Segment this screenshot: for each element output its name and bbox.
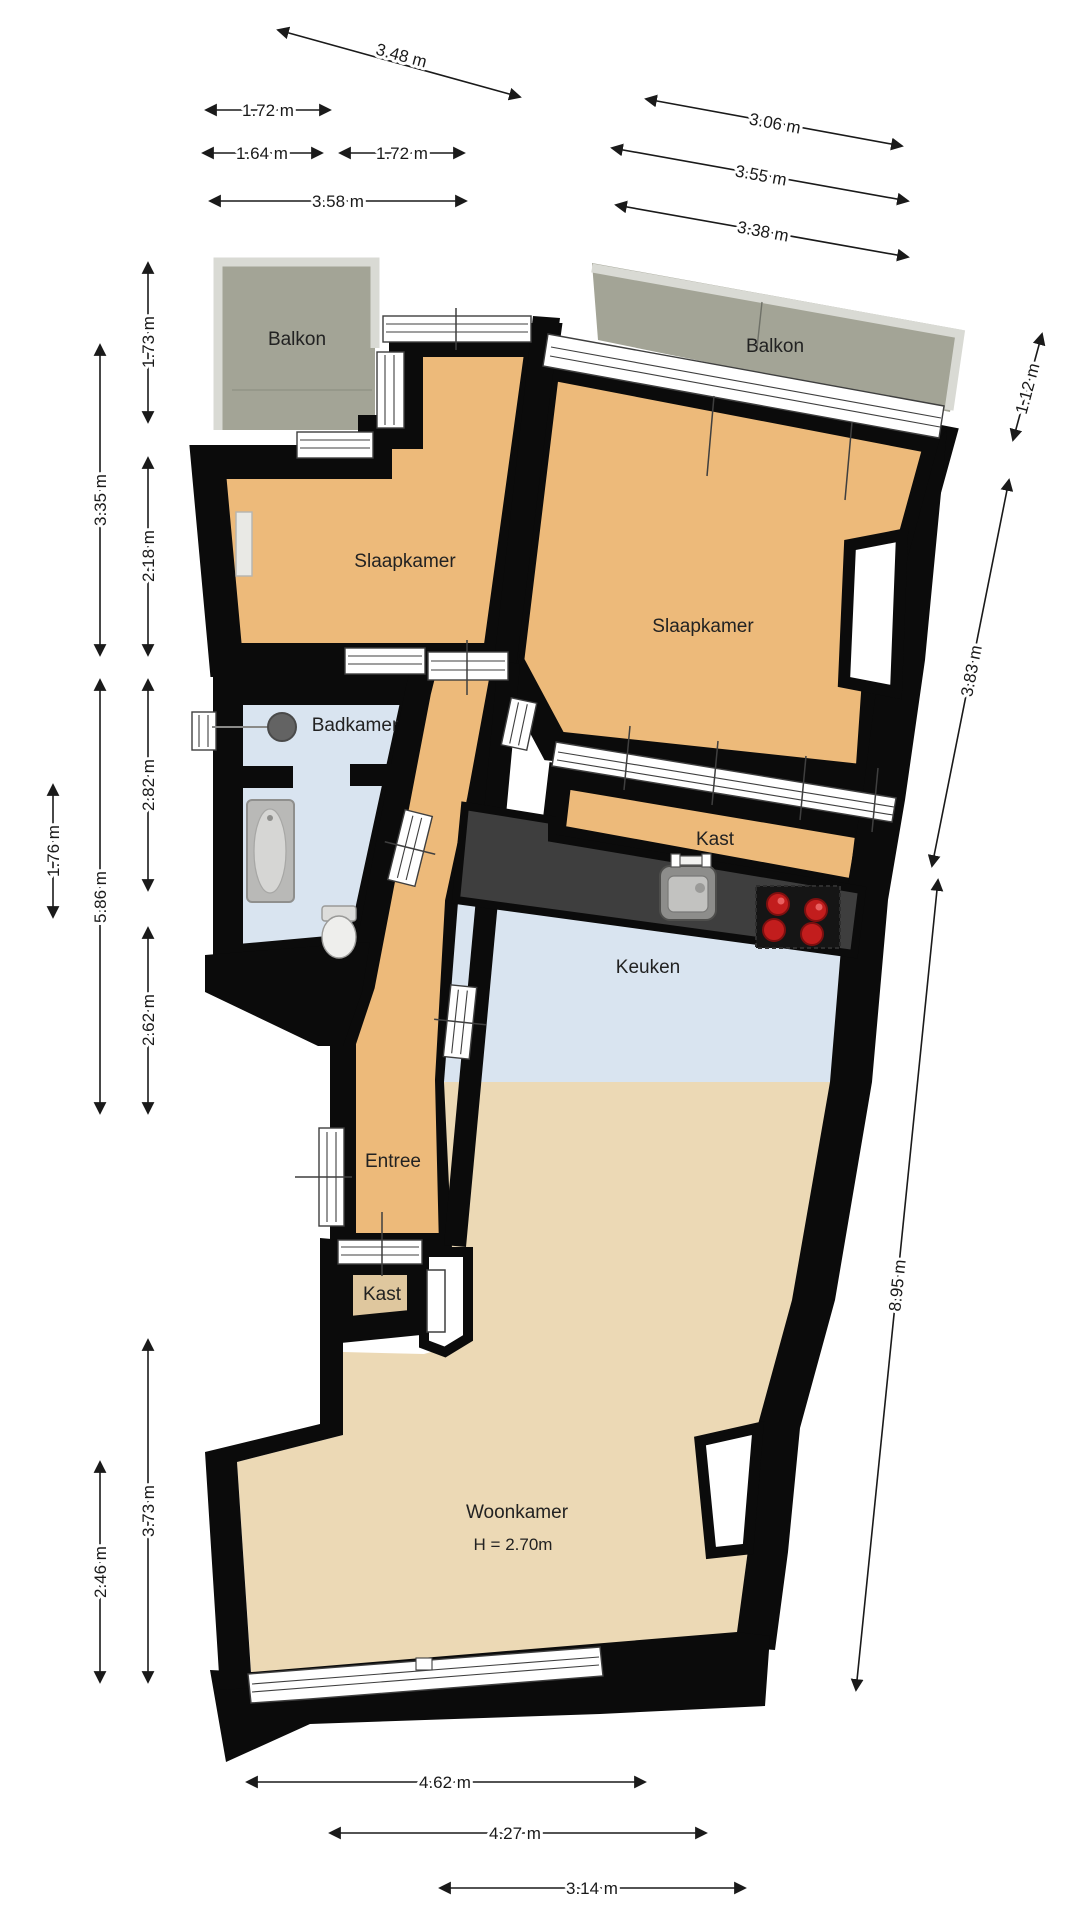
svg-text:8.95 m: 8.95 m — [885, 1259, 909, 1313]
dimension-top-358: 3.58 m — [210, 192, 466, 211]
dimension-bottom-427: 4.27 m — [330, 1824, 706, 1843]
svg-text:5.86 m: 5.86 m — [91, 871, 110, 923]
wall-badkamer-stub-left — [243, 766, 293, 788]
window-entree-left — [295, 1128, 352, 1226]
svg-text:3.58 m: 3.58 m — [312, 192, 364, 211]
niche-woonkamer — [700, 1428, 758, 1553]
label-kast-boven: Kast — [696, 829, 735, 850]
window-balcony-left-side — [377, 352, 404, 428]
bathtub-icon — [247, 800, 294, 902]
dimension-left-173: 1.73 m — [139, 263, 158, 422]
svg-text:3.14 m: 3.14 m — [566, 1879, 618, 1898]
label-kast-onder: Kast — [363, 1284, 402, 1305]
dimension-top-348: 3.48 m — [278, 30, 520, 97]
toilet-icon — [322, 906, 356, 958]
label-badkamer: Badkamer — [312, 715, 399, 736]
dimension-top-172b: 1.72 m — [340, 144, 464, 163]
dimension-bottom-314: 3.14 m — [440, 1879, 745, 1898]
floorplan-page: Balkon Balkon Slaapkamer Slaapkamer Badk… — [0, 0, 1080, 1920]
dimension-right-112: 1.12 m — [1012, 334, 1044, 440]
stove-icon — [756, 886, 840, 948]
svg-text:1.12 m: 1.12 m — [1012, 361, 1044, 416]
dimension-left-262: 2.62 m — [139, 928, 158, 1113]
svg-text:3.35 m: 3.35 m — [91, 474, 110, 526]
wall-badkamer-entree-jog — [205, 942, 370, 1046]
label-woonkamer: Woonkamer — [466, 1502, 569, 1523]
label-slaapkamer-left: Slaapkamer — [354, 551, 456, 572]
label-balkon-left: Balkon — [268, 329, 326, 350]
svg-text:1.76 m: 1.76 m — [44, 825, 63, 877]
dimension-top-355: 3.55 m — [612, 148, 908, 201]
dimension-top-306: 3.06 m — [646, 99, 902, 146]
dimension-left-586: 5.86 m — [91, 680, 110, 1113]
svg-text:2.46 m: 2.46 m — [91, 1546, 110, 1598]
label-slaapkamer-right: Slaapkamer — [652, 616, 754, 637]
dimension-top-164: 1.64 m — [203, 144, 322, 163]
svg-text:3.48 m: 3.48 m — [374, 40, 429, 72]
floorplan-canvas: Balkon Balkon Slaapkamer Slaapkamer Badk… — [0, 0, 1080, 1920]
dimension-bottom-462: 4.62 m — [247, 1773, 645, 1792]
svg-text:4.27 m: 4.27 m — [489, 1824, 541, 1843]
dimension-left-246: 2.46 m — [91, 1462, 110, 1682]
svg-text:3.38 m: 3.38 m — [736, 218, 791, 246]
label-woonkamer-hoogte: H = 2.70m — [474, 1535, 553, 1554]
svg-text:2.82 m: 2.82 m — [139, 759, 158, 811]
window-balcony-left-door — [297, 432, 373, 458]
svg-text:3.06 m: 3.06 m — [748, 110, 803, 138]
window-badkamer-left — [192, 712, 216, 750]
dimension-top-338: 3.38 m — [616, 205, 908, 257]
dimension-top-172a: 1.72 m — [206, 101, 330, 120]
dimension-left-373: 3.73 m — [139, 1340, 158, 1682]
niche-slaapkamer-right — [844, 535, 902, 692]
label-keuken: Keuken — [616, 957, 680, 978]
dimension-left-176: 1.76 m — [44, 785, 63, 917]
radiator-slaapkamer-left — [236, 512, 252, 576]
svg-text:4.62 m: 4.62 m — [419, 1773, 471, 1792]
svg-text:3.73 m: 3.73 m — [139, 1485, 158, 1537]
front-door — [424, 1252, 468, 1352]
front-door-leaf — [427, 1270, 445, 1332]
svg-text:1.64 m: 1.64 m — [236, 144, 288, 163]
label-balkon-right: Balkon — [746, 336, 804, 357]
svg-text:2.62 m: 2.62 m — [139, 994, 158, 1046]
svg-text:2.18 m: 2.18 m — [139, 530, 158, 582]
door-slaapkamer-left-bottom — [345, 648, 425, 674]
svg-text:1.72 m: 1.72 m — [376, 144, 428, 163]
dimension-left-282: 2.82 m — [139, 680, 158, 890]
svg-text:1.73 m: 1.73 m — [139, 316, 158, 368]
svg-text:3.83 m: 3.83 m — [957, 644, 986, 699]
svg-text:1.72 m: 1.72 m — [242, 101, 294, 120]
wall-badkamer-stub-right — [350, 764, 410, 786]
label-entree: Entree — [365, 1151, 421, 1172]
dimension-right-383: 3.83 m — [932, 480, 1009, 866]
dimension-left-335: 3.35 m — [91, 345, 110, 655]
dimension-left-218: 2.18 m — [139, 458, 158, 655]
svg-text:3.55 m: 3.55 m — [734, 162, 789, 190]
